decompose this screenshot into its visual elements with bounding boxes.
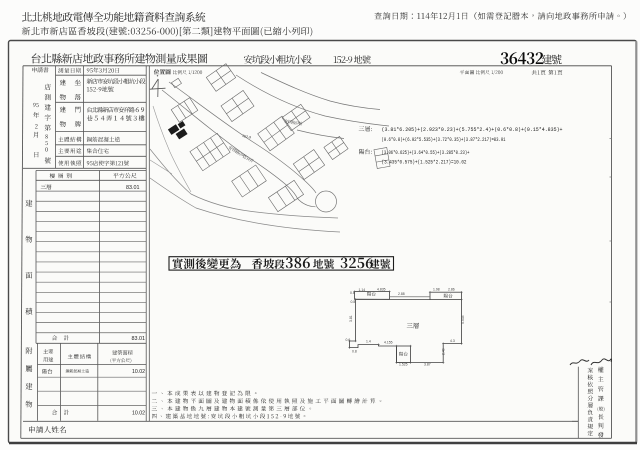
svg-text:4.3: 4.3: [450, 339, 455, 343]
svg-text:83.01: 83.01: [132, 336, 146, 342]
svg-text:2.40: 2.40: [442, 348, 446, 355]
svg-text:83.01: 83.01: [126, 185, 140, 191]
svg-text:10.02: 10.02: [132, 411, 145, 417]
svg-text:2.88: 2.88: [398, 292, 405, 296]
svg-text:3.81: 3.81: [349, 315, 353, 322]
svg-text:(0.6*0.8)+(6.02*5.535)+(3.72*0: (0.6*0.8)+(6.02*5.535)+(3.72*0.35)+(3.87…: [382, 136, 506, 143]
svg-text:5.535: 5.535: [461, 315, 465, 324]
svg-text:1.98: 1.98: [433, 288, 440, 292]
svg-text:10.02: 10.02: [132, 369, 145, 375]
svg-text:1.525: 1.525: [399, 363, 408, 367]
svg-text:1.14: 1.14: [359, 288, 366, 292]
svg-text:(3.06*0.625)+(3.64*0.55)+(3.28: (3.06*0.625)+(3.64*0.55)+(3.285*0.23)+: [382, 149, 470, 156]
svg-text:1.4: 1.4: [366, 340, 371, 344]
svg-text:4.155: 4.155: [384, 340, 393, 344]
svg-text:2.86: 2.86: [448, 288, 455, 292]
svg-text:(3.435*0.575)+(1.525*2.217)=10: (3.435*0.575)+(1.525*2.217)=10.02: [382, 158, 467, 165]
svg-text:4.835: 4.835: [377, 288, 386, 292]
svg-text:0.8: 0.8: [352, 350, 357, 354]
svg-text:(3.81*6.205)+(2.923*0.23)+(5.7: (3.81*6.205)+(2.923*0.23)+(5.755*2.4)+(0…: [382, 126, 563, 133]
svg-text:0.8: 0.8: [351, 300, 356, 304]
svg-text:3.87: 3.87: [424, 362, 431, 366]
